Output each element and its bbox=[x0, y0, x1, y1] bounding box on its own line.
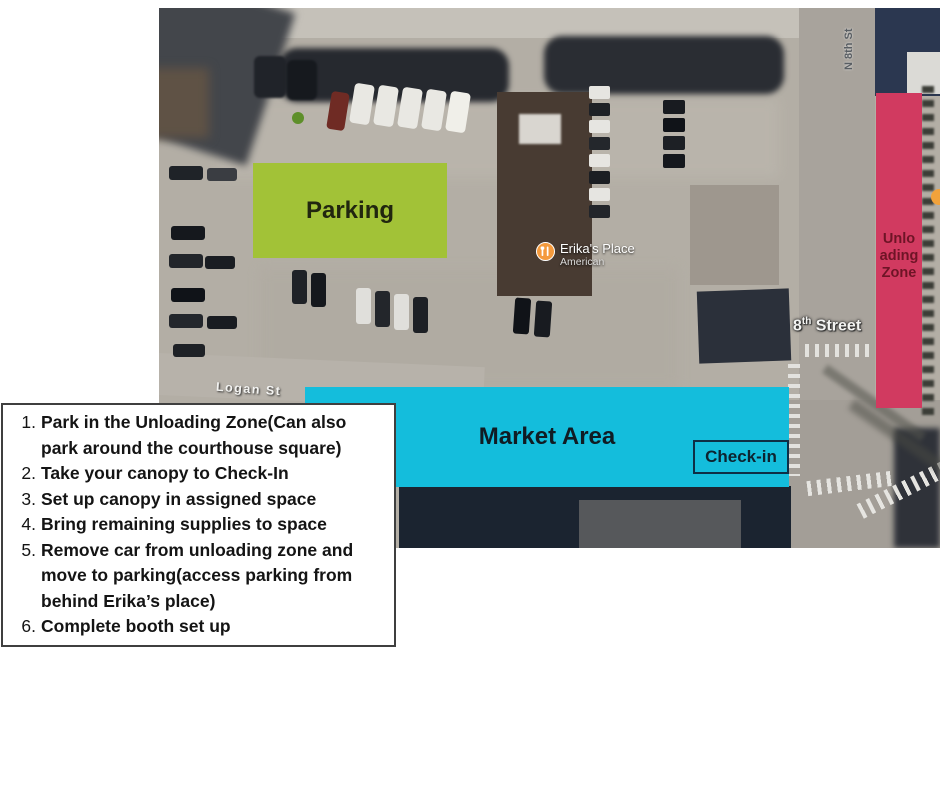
map-decor-shape bbox=[589, 188, 610, 201]
map-decor-shape bbox=[356, 288, 371, 324]
map-decor-shape bbox=[589, 171, 610, 184]
map-decor-shape bbox=[697, 288, 791, 363]
step-number: 3. bbox=[3, 487, 41, 513]
instruction-step: 4. Bring remaining supplies to space bbox=[3, 512, 388, 538]
map-decor-shape bbox=[159, 68, 209, 138]
step-text: Take your canopy to Check-In bbox=[41, 461, 388, 487]
step-number: 5. bbox=[3, 538, 41, 564]
map-decor-shape bbox=[311, 273, 326, 307]
step-number: 2. bbox=[3, 461, 41, 487]
map-decor-shape bbox=[579, 500, 741, 548]
eighth-street-word: Street bbox=[811, 317, 861, 334]
map-decor-shape bbox=[589, 86, 610, 99]
unloading-zone-label: Unlo ading Zone bbox=[880, 231, 919, 282]
map-decor-shape bbox=[534, 300, 552, 337]
step-text: Park in the Unloading Zone(Can also park… bbox=[41, 410, 388, 461]
map-decor-shape bbox=[205, 256, 235, 269]
step-text: Set up canopy in assigned space bbox=[41, 487, 388, 513]
parking-zone: Parking bbox=[253, 163, 447, 258]
map-decor-shape bbox=[663, 100, 685, 114]
poi-text: Erika's Place American bbox=[560, 242, 635, 268]
map-decor-shape bbox=[375, 291, 390, 327]
map-decor-shape bbox=[207, 316, 237, 329]
eighth-street-label: 8th Street bbox=[793, 316, 861, 335]
market-area-label: Market Area bbox=[479, 423, 616, 451]
map-decor-shape bbox=[805, 344, 875, 357]
map-decor-shape bbox=[663, 154, 685, 168]
step-number: 6. bbox=[3, 614, 41, 640]
map-decor-shape bbox=[788, 364, 800, 476]
parking-zone-label: Parking bbox=[306, 197, 394, 225]
map-decor-shape bbox=[519, 114, 561, 144]
check-in-label: Check-in bbox=[705, 447, 777, 467]
map-decor-shape bbox=[173, 344, 205, 357]
instruction-step: 6. Complete booth set up bbox=[3, 614, 388, 640]
n-8th-street-label: N 8th St bbox=[841, 10, 857, 70]
unloading-zone: Unlo ading Zone bbox=[876, 93, 922, 408]
eighth-street-number: 8 bbox=[793, 317, 802, 334]
instructions-panel: 1. Park in the Unloading Zone(Can also p… bbox=[1, 403, 396, 647]
map-decor-shape bbox=[169, 254, 203, 268]
map-decor-shape bbox=[589, 120, 610, 133]
step-text: Bring remaining supplies to space bbox=[41, 512, 388, 538]
map-decor-shape bbox=[589, 103, 610, 116]
unloading-line-3: Zone bbox=[882, 265, 917, 281]
map-decor-shape bbox=[663, 118, 685, 132]
restaurant-pin-icon bbox=[536, 242, 555, 266]
map-decor-shape bbox=[169, 166, 203, 180]
map-decor-shape bbox=[589, 205, 610, 218]
map-decor-shape bbox=[589, 154, 610, 167]
poi-category: American bbox=[560, 256, 635, 268]
map-decor-shape bbox=[544, 36, 784, 94]
instruction-step: 5. Remove car from unloading zone and mo… bbox=[3, 538, 388, 615]
step-text: Remove car from unloading zone and move … bbox=[41, 538, 388, 615]
instruction-step: 1. Park in the Unloading Zone(Can also p… bbox=[3, 410, 388, 461]
map-decor-shape bbox=[413, 297, 428, 333]
step-text: Complete booth set up bbox=[41, 614, 388, 640]
unloading-line-2: ading bbox=[880, 248, 919, 264]
poi-name: Erika's Place bbox=[560, 242, 635, 256]
map-decor-shape bbox=[254, 56, 286, 98]
map-decor-shape bbox=[931, 189, 940, 205]
map-decor-shape bbox=[287, 60, 317, 100]
map-decor-shape bbox=[171, 226, 205, 240]
step-number: 4. bbox=[3, 512, 41, 538]
flyer-page: Parking Market Area Check-in Unlo ading … bbox=[0, 0, 940, 788]
check-in-box: Check-in bbox=[693, 440, 789, 474]
map-decor-shape bbox=[207, 168, 237, 181]
instruction-step: 3. Set up canopy in assigned space bbox=[3, 487, 388, 513]
map-decor-shape bbox=[171, 288, 205, 302]
map-decor-shape bbox=[169, 314, 203, 328]
unloading-line-1: Unlo bbox=[883, 231, 915, 247]
map-decor-shape bbox=[292, 112, 304, 124]
step-number: 1. bbox=[3, 410, 41, 436]
map-decor-shape bbox=[663, 136, 685, 150]
map-decor-shape bbox=[690, 185, 779, 285]
map-decor-shape bbox=[513, 297, 531, 334]
map-decor-shape bbox=[589, 137, 610, 150]
instruction-step: 2. Take your canopy to Check-In bbox=[3, 461, 388, 487]
map-decor-shape bbox=[292, 270, 307, 304]
map-decor-shape bbox=[922, 86, 934, 421]
map-decor-shape bbox=[394, 294, 409, 330]
eighth-street-ordinal: th bbox=[802, 316, 811, 327]
erikas-place-poi: Erika's Place American bbox=[536, 242, 635, 268]
